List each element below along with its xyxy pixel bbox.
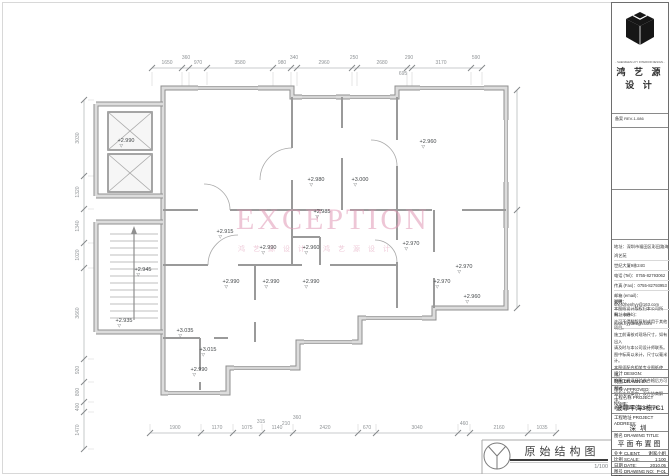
registration-row: 备案 REV-1-086 [612,116,670,122]
project-name-label: 工程名称 PROJECT NAME: [612,393,668,400]
drawing-sheet: EXCEPTION 鸿艺源设计 鸿艺源设计 165036097035809803… [0,0,670,476]
note-line: 图中标高以米计，尺寸以毫米计。 [614,352,670,365]
contact-line: 传真 (Fax)：0755-82793953 [614,281,670,291]
staircase [110,226,158,320]
contact-line: 地址：深圳市福田区彩田路海鸿艺苑 [614,242,670,261]
door-swings [204,140,397,265]
divider [612,127,668,128]
project-address-label: 工程地址 PROJECT ADDRESS: [612,413,668,420]
divider [612,113,668,114]
company-name: 鸿 艺 源 设 计 [612,65,668,91]
extension-lines [88,72,556,449]
drawing-title-value: 平面布置图 [612,439,668,449]
floor-plan-drawing [0,0,670,476]
company-tagline: - SHENZHEN HYY INTERIOR DESIGN - [615,60,665,64]
title-block: - SHENZHEN HYY INTERIOR DESIGN - 鸿 艺 源 设… [611,2,669,476]
elevator-shafts [108,112,152,192]
project-name-value: 波菲平海3栋7C1 [612,402,668,412]
note-line: 本图纸设计版权归本公司所有，未经 [614,306,670,319]
approved-row: 审核 APPROVED: [612,385,668,393]
sheet-border [3,3,668,474]
drawing-stamp-scale: 1/100 [560,464,608,470]
drawing-title-label: 图名 DRAWING TITLE: [612,431,668,438]
note-line: 许可不得翻版复制或用于其他项目。 [614,319,670,332]
note-line: 施工前请核对现场尺寸，如有出入 [614,332,670,345]
window-symbols [168,85,509,396]
note-line: 请及时与本公司设计师联系。 [614,345,670,352]
divider [612,239,668,240]
drawn-by-row: 制图 DRAWN BY: [612,377,668,385]
interior-walls [163,97,506,393]
contact-line: 世纪大厦9栋24G [614,261,670,271]
notes-title: 说明： [614,299,670,306]
drawing-stamp-title: 原始结构图 [514,443,610,459]
exterior-walls [96,88,506,393]
contact-line: 电话 (Tel)：0755-82793062 [614,271,670,281]
divider [612,189,668,190]
design-row: 设计 DESIGN: [612,369,668,377]
